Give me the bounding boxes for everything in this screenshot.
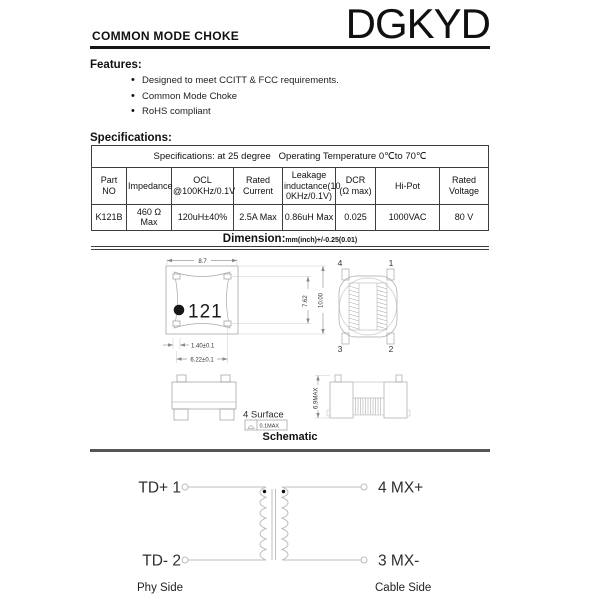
specifications-heading: Specifications:: [90, 132, 172, 144]
terminal-circle: [361, 557, 367, 563]
feature-item: Common Mode Choke: [142, 92, 339, 102]
dim-pad-pitch-label: 6.22±0.1: [190, 357, 214, 363]
dimension-drawings: 121 8.7 7.62 10.00 1.40±0.1 6.22±0.1 4 1…: [90, 252, 490, 450]
col-header: DCR (Ω max): [336, 168, 376, 205]
schematic-heading: Schematic: [90, 431, 490, 443]
dimension-rule: [91, 246, 489, 250]
primary-winding: [260, 487, 266, 560]
brand-logo: DGKYD: [346, 3, 490, 45]
polarity-dot: [282, 490, 285, 493]
col-header: Part NO: [92, 168, 127, 205]
terminal-circle: [182, 484, 188, 490]
col-header: Rated Voltage: [440, 168, 489, 205]
cable-side-label: Cable Side: [375, 582, 431, 594]
cell-part-no: K121B: [92, 204, 127, 230]
dim-pad-width-label: 1.40±0.1: [191, 344, 215, 350]
features-list: Designed to meet CCITT & FCC requirement…: [142, 76, 339, 123]
pin-4-label: 4: [338, 258, 343, 268]
pin-3-label: 3: [338, 344, 343, 354]
terminal-circle: [361, 484, 367, 490]
cell-impedance: 460 Ω Max: [127, 204, 172, 230]
schematic-rule: [90, 449, 490, 452]
terminal-circle: [182, 557, 188, 563]
pin-label-td-minus: TD- 2: [142, 553, 181, 570]
pin-label-td-plus: TD+ 1: [138, 480, 181, 497]
pin-label-mx-plus: 4 MX+: [378, 480, 423, 497]
dimension-tolerance: mm(inch)+/-0.25(0.01): [285, 237, 357, 244]
dim-width-label: 8.7: [198, 259, 207, 265]
cell-leakage: 0.86uH Max: [283, 204, 336, 230]
side-view-right-drawing: 6.9MAX: [311, 375, 410, 418]
header-rule: [90, 46, 490, 49]
col-header: Leakage inductance(10 0KHz/0.1V): [283, 168, 336, 205]
side-view-front-drawing: 4 Surface 0.1MAX: [172, 375, 287, 430]
col-header: OCL @100KHz/0.1V: [172, 168, 234, 205]
condition-cell: Specifications: at 25 degree Operating T…: [92, 146, 489, 168]
dim-height-label: 10.00: [318, 292, 324, 308]
specifications-table: Specifications: at 25 degree Operating T…: [91, 145, 489, 231]
polarity-dot: [174, 305, 185, 316]
col-header: Rated Current: [234, 168, 283, 205]
cell-ocl: 120uH±40%: [172, 204, 234, 230]
pin-2-label: 2: [389, 344, 394, 354]
top-view-drawing: 121 8.7 7.62 10.00 1.40±0.1 6.22±0.1: [163, 256, 326, 363]
dim-pad-span-label: 7.62: [303, 295, 309, 307]
col-header: Hi-Pot: [376, 168, 440, 205]
page-title: COMMON MODE CHOKE: [92, 29, 239, 43]
cell-rated-current: 2.5A Max: [234, 204, 283, 230]
surface-note-label: 4 Surface: [243, 410, 284, 421]
feature-item: Designed to meet CCITT & FCC requirement…: [142, 76, 339, 86]
bottom-view-drawing: 4 1 3 2: [338, 258, 397, 354]
phy-side-label: Phy Side: [137, 582, 183, 594]
pin-label-mx-minus: 3 MX-: [378, 553, 419, 570]
dimension-heading: Dimension:: [223, 233, 286, 245]
table-header-row: Part NO Impedance OCL @100KHz/0.1V Rated…: [92, 168, 489, 205]
dim-height-max-label: 6.9MAX: [313, 388, 319, 409]
cell-dcr: 0.025: [336, 204, 376, 230]
col-header: Impedance: [127, 168, 172, 205]
cell-rated-voltage: 80 V: [440, 204, 489, 230]
secondary-winding: [282, 487, 288, 560]
features-heading: Features:: [90, 59, 142, 71]
feature-item: RoHS compliant: [142, 107, 339, 117]
table-row: K121B 460 Ω Max 120uH±40% 2.5A Max 0.86u…: [92, 204, 489, 230]
schematic-diagram: TD+ 1 TD- 2 4 MX+ 3 MX- Phy Side Cable S…: [90, 460, 490, 600]
datasheet-page: COMMON MODE CHOKE DGKYD Features: Design…: [0, 0, 600, 600]
polarity-dot: [263, 490, 266, 493]
part-marking: 121: [188, 302, 223, 323]
core-lines: [272, 489, 276, 560]
dimension-heading-row: Dimension:mm(inch)+/-0.25(0.01): [90, 229, 490, 247]
pad-profile-icon: [248, 426, 254, 429]
pin-1-label: 1: [389, 258, 394, 268]
coplanarity-label: 0.1MAX: [260, 424, 280, 430]
table-condition-row: Specifications: at 25 degree Operating T…: [92, 146, 489, 168]
cell-hipot: 1000VAC: [376, 204, 440, 230]
